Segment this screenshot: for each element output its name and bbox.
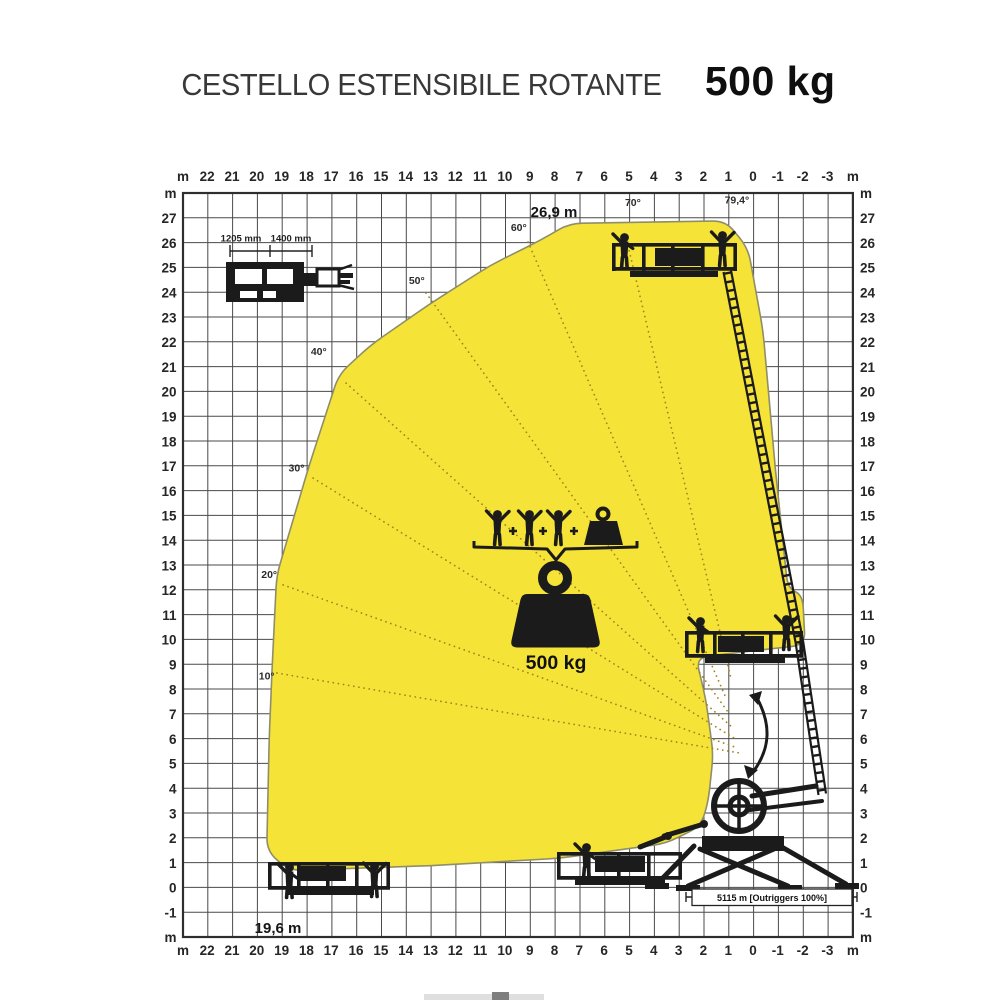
axis-tick-label: 17 [324,169,339,184]
axis-tick-label: 5 [625,169,633,184]
axis-tick-label: 22 [200,943,215,958]
axis-tick-label: 21 [161,360,177,375]
angle-label: 40° [311,346,327,358]
axis-tick-label: 1 [169,856,177,871]
angle-label: 79,4° [725,195,750,207]
axis-tick-label: 26 [860,236,876,251]
axis-tick-label: 4 [860,782,868,797]
cropped-footer-artifact [424,994,544,1000]
axis-tick-label: 6 [169,732,177,747]
angle-label: 10° [259,671,275,683]
axis-tick-label: 12 [860,583,875,598]
axis-tick-label: 6 [600,943,608,958]
axis-unit-label: m [847,169,859,184]
axis-tick-label: 11 [473,943,488,958]
width-dimension: 1205 mm 1400 mm [221,234,312,258]
axis-tick-label: 7 [860,707,868,722]
outrigger-dimension: 5115 m [Outriggers 100%] [686,889,857,906]
angle-label: 30° [289,462,305,474]
axis-tick-label: 10 [497,943,512,958]
axis-tick-label: -3 [821,943,833,958]
angle-label: 60° [511,222,527,234]
axis-tick-label: 10 [497,169,512,184]
axis-tick-label: 14 [398,169,414,184]
axis-tick-label: 9 [526,943,534,958]
axis-tick-label: 20 [161,385,176,400]
axis-tick-label: 9 [169,658,177,673]
axis-tick-label: 4 [650,169,658,184]
axis-tick-label: 2 [700,169,708,184]
angle-label: 50° [409,275,425,287]
axis-tick-label: 27 [161,211,176,226]
dim-label-1205: 1205 mm [221,234,262,245]
axis-tick-label: 5 [169,757,177,772]
axis-tick-label: 1 [724,169,732,184]
axis-tick-label: 12 [448,943,463,958]
axis-unit-label: m [177,943,189,958]
axis-tick-label: 10 [860,633,875,648]
axis-tick-label: 25 [161,261,177,276]
axis-tick-label: 3 [169,806,177,821]
axis-tick-label: 18 [299,169,315,184]
axis-tick-label: 8 [551,943,559,958]
dim-label-1400: 1400 mm [271,234,312,245]
axis-tick-label: 8 [860,682,868,697]
axis-unit-label: m [860,186,872,201]
axis-tick-label: 4 [169,782,177,797]
axis-tick-label: 17 [161,459,176,474]
axis-tick-label: 1 [860,856,868,871]
axis-tick-label: 0 [860,881,868,896]
axis-tick-label: 20 [249,943,264,958]
axis-tick-label: 22 [860,335,875,350]
cropped-footer-artifact [492,992,509,1000]
axis-tick-label: 12 [448,169,463,184]
axis-tick-label: 17 [324,943,339,958]
axis-tick-label: 19 [274,943,289,958]
axis-tick-label: 19 [274,169,289,184]
axis-tick-label: 13 [860,558,876,573]
axis-tick-label: 27 [860,211,875,226]
axis-tick-label: 15 [373,943,389,958]
axis-tick-label: 17 [860,459,875,474]
axis-tick-label: 11 [473,169,488,184]
axis-unit-label: m [164,930,176,945]
rotation-arrow-icon [744,691,767,779]
axis-tick-label: 22 [161,335,176,350]
axis-unit-label: m [164,186,176,201]
axis-tick-label: -1 [164,906,176,921]
axis-unit-label: m [847,943,859,958]
axis-tick-label: -2 [797,943,809,958]
outrigger-label: 5115 m [Outriggers 100%] [717,893,827,903]
axis-tick-label: 16 [348,169,364,184]
axis-tick-label: 13 [423,169,439,184]
axis-tick-label: -3 [821,169,833,184]
axis-tick-label: 20 [249,169,264,184]
axis-tick-label: 7 [576,169,584,184]
axis-tick-label: 14 [398,943,414,958]
axis-tick-label: 24 [161,286,177,301]
axis-tick-label: 15 [373,169,389,184]
stowed-machine-icon [226,262,354,302]
axis-tick-label: 20 [860,385,875,400]
axis-tick-label: 15 [860,509,876,524]
axis-tick-label: 16 [161,484,177,499]
angle-label: 70° [625,197,641,209]
axis-tick-label: 16 [348,943,364,958]
axis-tick-label: 18 [299,943,315,958]
axis-tick-label: 6 [860,732,868,747]
axis-tick-label: 10 [161,633,176,648]
axis-tick-label: 2 [169,831,177,846]
axis-tick-label: 3 [675,169,683,184]
axis-tick-label: 12 [161,583,176,598]
axis-tick-label: 1 [724,943,732,958]
axis-tick-label: 9 [526,169,534,184]
axis-unit-label: m [860,930,872,945]
max-outreach-label: 19,6 m [255,920,302,937]
axis-tick-label: 6 [600,169,608,184]
axis-tick-label: 7 [576,943,584,958]
axis-tick-label: 5 [625,943,633,958]
load-chart-page: CESTELLO ESTENSIBILE ROTANTE 500 kg [0,0,995,1000]
axis-tick-label: 22 [200,169,215,184]
axis-tick-label: 0 [749,943,757,958]
axis-tick-label: 15 [161,509,177,524]
axis-tick-label: 7 [169,707,177,722]
axis-tick-label: 21 [224,943,240,958]
axis-tick-label: 3 [675,943,683,958]
axis-tick-label: -1 [860,906,872,921]
axis-tick-label: 11 [860,608,875,623]
axis-tick-label: 21 [224,169,240,184]
axis-tick-label: -1 [772,169,784,184]
axis-tick-label: 3 [860,806,868,821]
angle-label: 20° [261,569,277,581]
axis-tick-label: 23 [161,310,177,325]
axis-tick-label: 19 [860,410,875,425]
axis-tick-label: 25 [860,261,876,276]
axis-tick-label: 16 [860,484,876,499]
axis-tick-label: 0 [169,881,177,896]
axis-tick-label: 19 [161,410,176,425]
axis-tick-label: 23 [860,310,876,325]
axis-tick-label: 18 [860,434,876,449]
axis-tick-label: -2 [797,169,809,184]
axis-tick-label: 13 [423,943,439,958]
axis-tick-label: 21 [860,360,876,375]
axis-tick-label: 8 [551,169,559,184]
axis-tick-label: 0 [749,169,757,184]
axis-tick-label: 24 [860,286,876,301]
axis-tick-label: 9 [860,658,868,673]
working-range-chart: 2222212120201919181817171616151514141313… [0,0,995,1000]
axis-tick-label: 11 [162,608,177,623]
axis-tick-label: 2 [860,831,868,846]
working-envelope-area [267,221,805,870]
axis-tick-label: 13 [161,558,177,573]
axis-tick-label: 26 [161,236,177,251]
max-height-label: 26,9 m [531,204,578,221]
axis-tick-label: 8 [169,682,177,697]
axis-tick-label: 4 [650,943,658,958]
axis-tick-label: 14 [860,534,876,549]
axis-tick-label: 14 [161,534,177,549]
axis-tick-label: 18 [161,434,177,449]
pictogram-capacity-label: 500 kg [526,652,587,674]
axis-tick-label: 2 [700,943,708,958]
axis-unit-label: m [177,169,189,184]
axis-tick-label: 5 [860,757,868,772]
axis-tick-label: -1 [772,943,784,958]
